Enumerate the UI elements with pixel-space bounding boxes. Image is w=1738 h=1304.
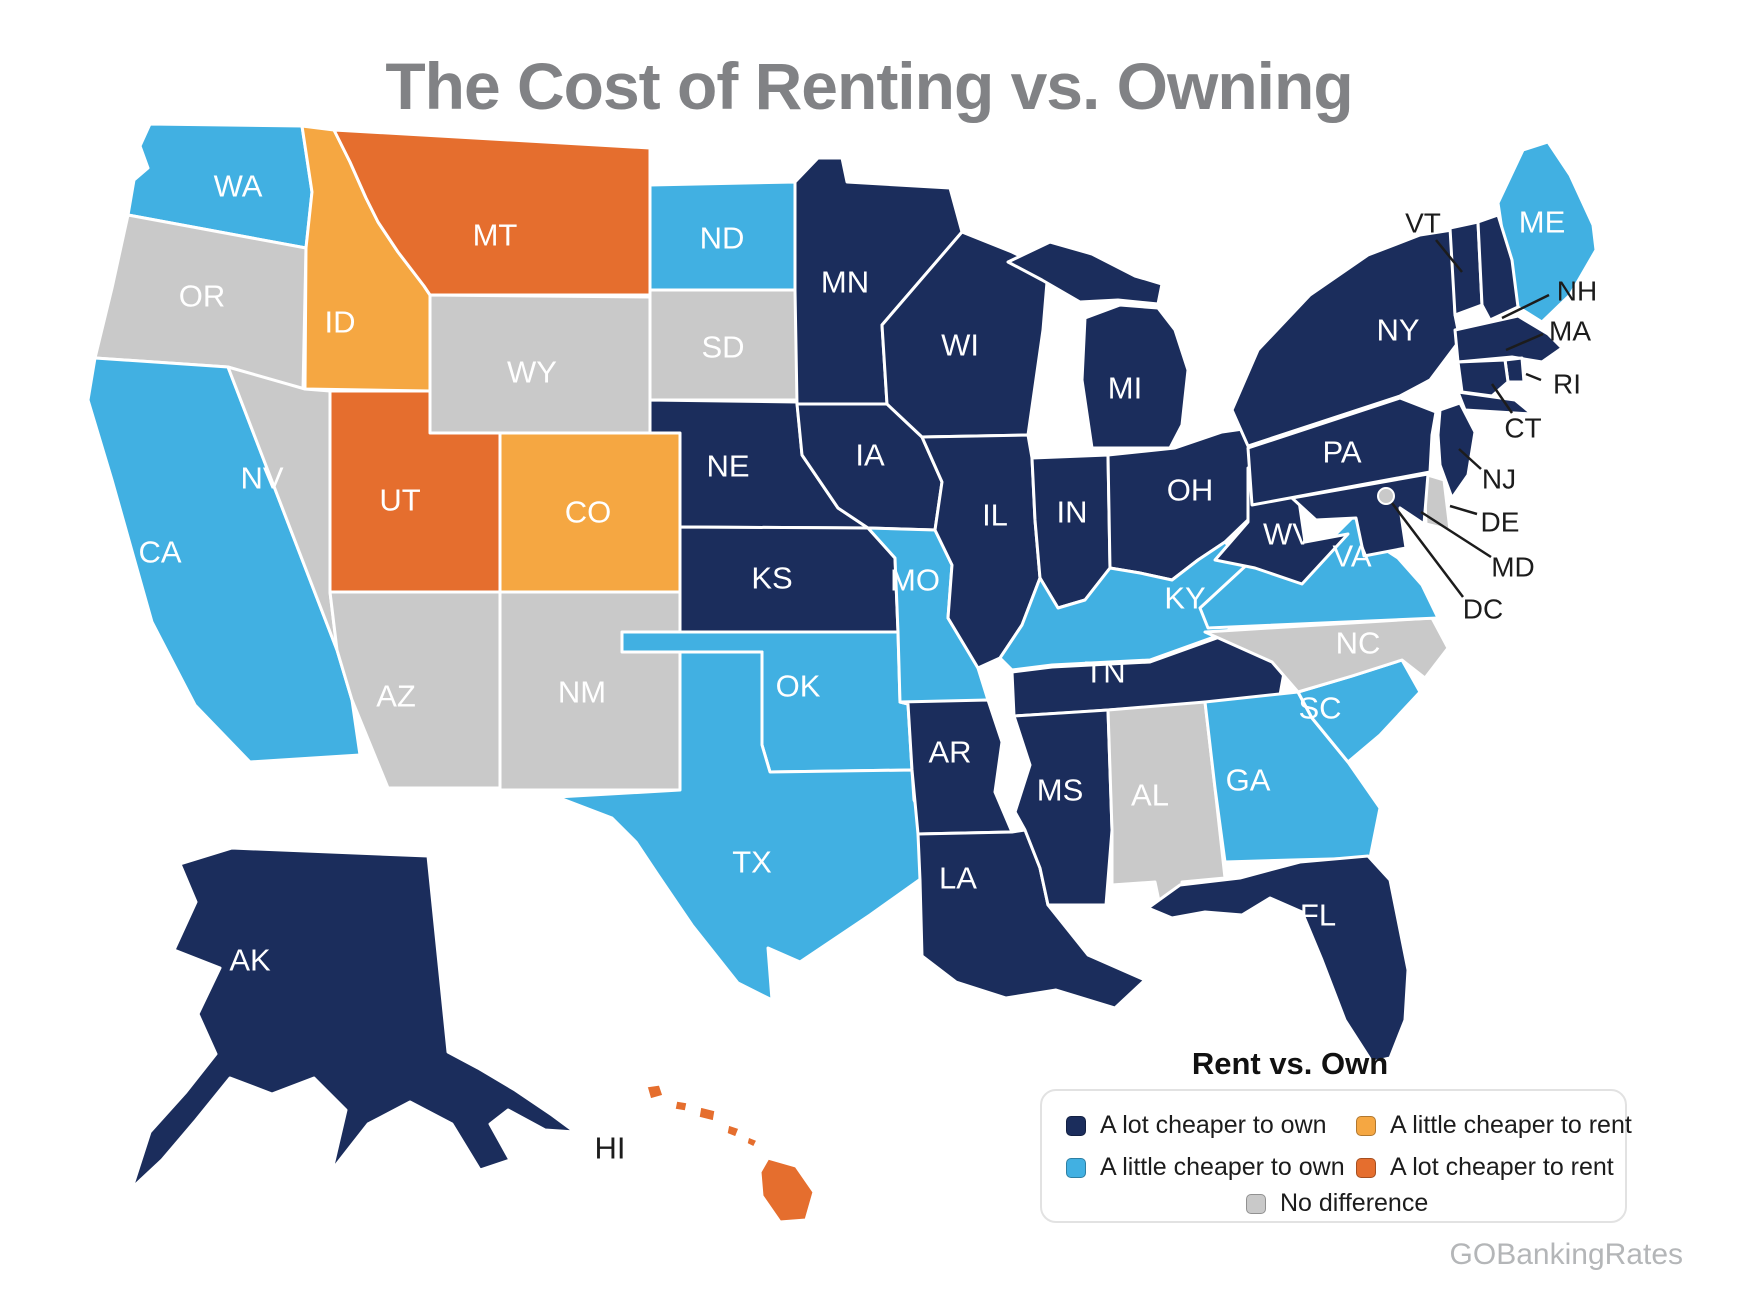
state-label-mo: MO <box>890 563 940 598</box>
legend-item-a-little-cheaper-to-rent: A little cheaper to rent <box>1356 1111 1632 1140</box>
infographic-canvas: The Cost of Renting vs. Owning WAORCANVI… <box>0 0 1738 1304</box>
legend-item-no-difference: No difference <box>1246 1189 1428 1218</box>
state-label-il: IL <box>982 498 1008 533</box>
state-label-ky: KY <box>1164 581 1205 616</box>
callout-line-ri <box>1526 374 1541 380</box>
state-label-hi: HI <box>595 1131 626 1166</box>
legend-title: Rent vs. Own <box>1040 1046 1540 1082</box>
state-label-ut: UT <box>379 483 420 518</box>
state-label-nv: NV <box>240 461 283 496</box>
state-label-ne: NE <box>706 449 749 484</box>
legend-item-a-lot-cheaper-to-rent: A lot cheaper to rent <box>1356 1153 1614 1182</box>
state-label-ia: IA <box>855 438 885 473</box>
callout-label-ct: CT <box>1504 413 1541 444</box>
state-label-pa: PA <box>1322 435 1361 470</box>
legend-swatch-a-lot-rent <box>1356 1158 1376 1178</box>
callout-label-vt: VT <box>1405 208 1441 239</box>
state-label-ca: CA <box>138 535 181 570</box>
callout-label-nh: NH <box>1557 276 1597 307</box>
state-label-wy: WY <box>507 355 557 390</box>
state-label-sd: SD <box>701 330 744 365</box>
callout-line-de <box>1450 506 1477 514</box>
state-label-fl: FL <box>1300 898 1336 933</box>
state-label-nd: ND <box>700 221 745 256</box>
state-label-or: OR <box>179 279 226 314</box>
state-label-ok: OK <box>776 669 821 704</box>
state-label-oh: OH <box>1167 473 1214 508</box>
state-label-sc: SC <box>1298 691 1341 726</box>
state-label-az: AZ <box>376 679 416 714</box>
state-label-nc: NC <box>1336 626 1381 661</box>
state-label-co: CO <box>565 495 612 530</box>
legend-swatch-a-lot-own <box>1066 1116 1086 1136</box>
legend-item-a-little-cheaper-to-own: A little cheaper to own <box>1066 1153 1345 1182</box>
state-label-id: ID <box>325 305 356 340</box>
state-label-ny: NY <box>1376 313 1419 348</box>
callout-label-nj: NJ <box>1482 464 1516 495</box>
state-fl <box>1148 856 1408 1062</box>
legend-swatch-no-difference <box>1246 1194 1266 1214</box>
state-hi <box>746 1136 758 1148</box>
state-label-nm: NM <box>558 675 606 710</box>
state-ma <box>1455 316 1562 362</box>
callout-label-md: MD <box>1491 552 1535 583</box>
state-label-tn: TN <box>1084 655 1125 690</box>
callout-label-ri: RI <box>1553 369 1581 400</box>
legend-label: A little cheaper to rent <box>1390 1111 1632 1140</box>
state-dc-dot <box>1378 488 1394 504</box>
legend-label: A lot cheaper to own <box>1100 1111 1327 1140</box>
state-hi <box>646 1084 664 1100</box>
state-label-mn: MN <box>821 265 869 300</box>
state-label-wv: WV <box>1263 517 1313 552</box>
legend-label: A lot cheaper to rent <box>1390 1153 1614 1182</box>
legend-swatch-a-little-own <box>1066 1158 1086 1178</box>
state-label-wa: WA <box>214 169 263 204</box>
state-label-ks: KS <box>751 561 792 596</box>
legend-label: A little cheaper to own <box>1100 1153 1345 1182</box>
state-hi <box>674 1100 688 1112</box>
state-label-mt: MT <box>473 218 518 253</box>
state-label-me: ME <box>1519 205 1566 240</box>
state-ak <box>132 848 575 1188</box>
state-label-in: IN <box>1057 495 1088 530</box>
legend-swatch-a-little-rent <box>1356 1116 1376 1136</box>
state-label-tx: TX <box>732 845 772 880</box>
state-label-la: LA <box>939 861 977 896</box>
state-label-ms: MS <box>1037 773 1084 808</box>
state-label-al: AL <box>1131 778 1169 813</box>
state-ct <box>1458 360 1508 396</box>
state-hi <box>726 1124 740 1138</box>
callout-label-de: DE <box>1481 507 1520 538</box>
watermark: GOBankingRates <box>1450 1238 1683 1272</box>
callout-label-ma: MA <box>1549 316 1591 347</box>
legend-label: No difference <box>1280 1189 1428 1218</box>
legend-item-a-lot-cheaper-to-own: A lot cheaper to own <box>1066 1111 1327 1140</box>
state-label-ar: AR <box>928 735 971 770</box>
state-label-va: VA <box>1332 539 1371 574</box>
callout-label-dc: DC <box>1463 594 1503 625</box>
state-label-ak: AK <box>229 943 271 978</box>
state-hi <box>698 1106 716 1122</box>
state-label-ga: GA <box>1226 763 1271 798</box>
state-hi <box>760 1158 814 1222</box>
state-label-mi: MI <box>1108 371 1142 406</box>
state-label-wi: WI <box>941 328 979 363</box>
